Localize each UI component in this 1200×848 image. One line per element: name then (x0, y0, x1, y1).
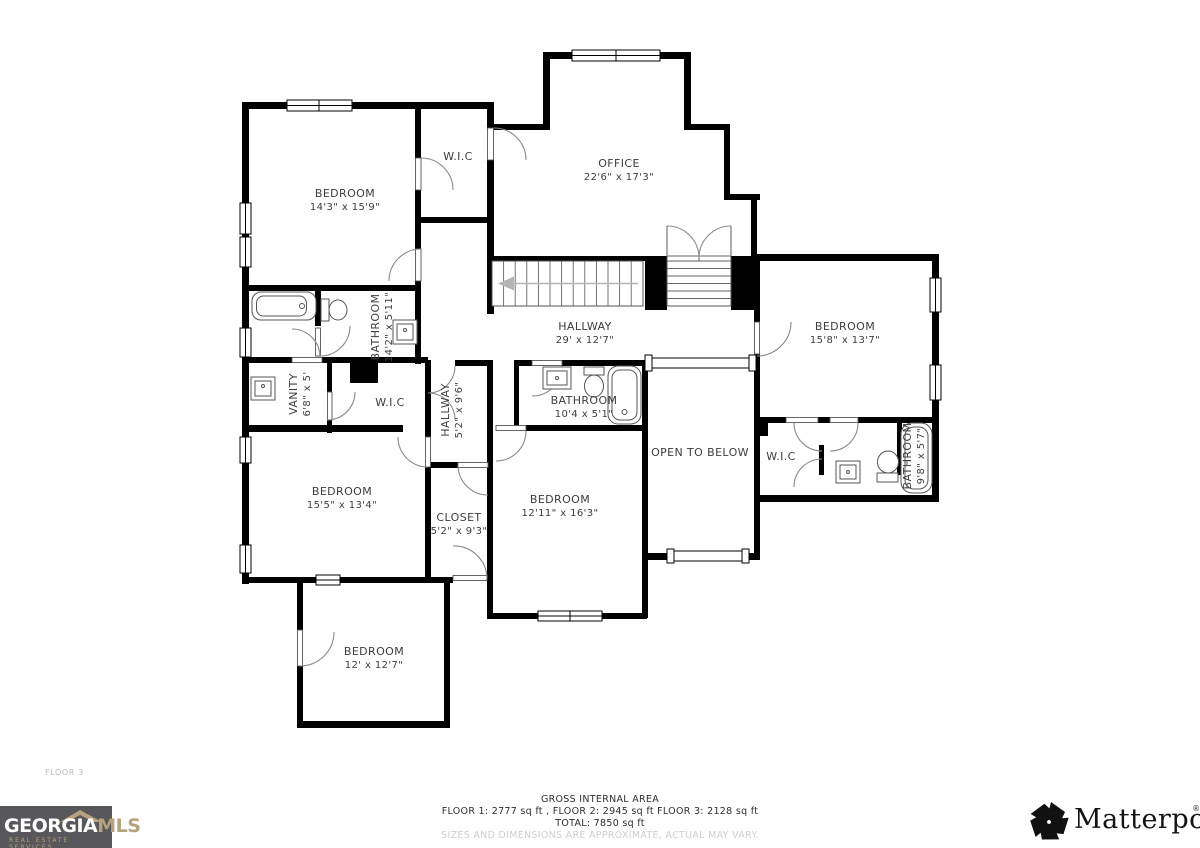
toilet-mid-bathroom (584, 367, 604, 397)
railings (645, 355, 756, 563)
sink-mid-bathroom (543, 367, 571, 389)
svg-text:12' x 12'7": 12' x 12'7" (345, 660, 404, 671)
room-label-bedroom-mid: BEDROOM 12'11" x 16'3" (521, 493, 598, 519)
sink-vanity (251, 377, 275, 400)
georgia-mls-logo: GEORGIAMLS REAL ESTATE SERVICES (0, 806, 112, 848)
floor-areas-line: FLOOR 1: 2777 sq ft , FLOOR 2: 2945 sq f… (0, 806, 1200, 818)
sink-left (393, 320, 417, 344)
svg-text:W.I.C: W.I.C (443, 150, 473, 163)
svg-text:12'11" x 16'3": 12'11" x 16'3" (521, 508, 598, 519)
svg-text:14'3" x 15'9": 14'3" x 15'9" (310, 202, 380, 213)
svg-text:W.I.C: W.I.C (375, 396, 405, 409)
svg-text:BEDROOM: BEDROOM (312, 485, 372, 498)
room-label-hallway-main: HALLWAY 29' x 12'7" (556, 320, 615, 346)
toilet-left (321, 299, 347, 321)
room-label-bedroom-left: BEDROOM 15'5" x 13'4" (307, 485, 377, 511)
svg-text:29' x 12'7": 29' x 12'7" (556, 335, 615, 346)
room-label-bedroom-right: BEDROOM 15'8" x 13'7" (810, 320, 880, 346)
staircase (492, 261, 731, 306)
svg-text:BEDROOM: BEDROOM (530, 493, 590, 506)
footer-area-summary: GROSS INTERNAL AREA FLOOR 1: 2777 sq ft … (0, 794, 1200, 843)
svg-text:22'6" x 17'3": 22'6" x 17'3" (584, 172, 654, 183)
svg-text:HALLWAY: HALLWAY (439, 383, 452, 437)
room-label-bedroom-topleft: BEDROOM 14'3" x 15'9" (310, 187, 380, 213)
room-label-hallway-small: HALLWAY 5'2" x 9'6" (439, 382, 465, 439)
georgia-mls-wordmark: GEORGIAMLS (4, 815, 140, 837)
svg-text:CLOSET: CLOSET (436, 511, 481, 524)
room-label-wic-left: W.I.C (375, 396, 405, 409)
svg-text:BEDROOM: BEDROOM (344, 645, 404, 658)
room-label-vanity: VANITY 6'8" x 5' (287, 371, 313, 416)
svg-text:VANITY: VANITY (287, 373, 300, 415)
room-label-office: OFFICE 22'6" x 17'3" (584, 157, 654, 183)
room-label-bathroom-left: BATHROOM 14'2" x 5'11" (369, 292, 395, 362)
georgia-mls-tagline: REAL ESTATE SERVICES (9, 837, 112, 848)
total-area-line: TOTAL: 7850 sq ft (0, 818, 1200, 830)
svg-text:5'2" x 9'6": 5'2" x 9'6" (454, 382, 465, 439)
svg-text:OFFICE: OFFICE (598, 157, 640, 170)
svg-text:W.I.C: W.I.C (766, 450, 796, 463)
room-label-bathroom-mid: BATHROOM 10'4 x 5'1" (551, 394, 618, 420)
floor-label: FLOOR 3 (45, 768, 84, 777)
mls-text: MLS (97, 815, 140, 837)
room-label-wic-top: W.I.C (443, 150, 473, 163)
floorplan-drawing: BEDROOM 14'3" x 15'9" W.I.C OFFICE 22'6"… (0, 0, 1200, 790)
room-labels: BEDROOM 14'3" x 15'9" W.I.C OFFICE 22'6"… (287, 150, 927, 671)
matterport-wordmark: Matterport (1074, 804, 1200, 835)
svg-text:BATHROOM: BATHROOM (369, 294, 382, 361)
room-label-closet: CLOSET 5'2" x 9'3" (431, 511, 488, 537)
floorplan-page: BEDROOM 14'3" x 15'9" W.I.C OFFICE 22'6"… (0, 0, 1200, 848)
room-label-open-to-below: OPEN TO BELOW (651, 446, 749, 459)
room-label-wic-right: W.I.C (766, 450, 796, 463)
svg-text:BATHROOM: BATHROOM (901, 423, 914, 490)
svg-text:OPEN TO BELOW: OPEN TO BELOW (651, 446, 749, 459)
svg-text:6'8" x 5': 6'8" x 5' (302, 371, 313, 416)
gross-internal-area-heading: GROSS INTERNAL AREA (0, 794, 1200, 806)
svg-text:10'4 x 5'1": 10'4 x 5'1" (555, 409, 614, 420)
svg-text:BATHROOM: BATHROOM (551, 394, 618, 407)
svg-text:BEDROOM: BEDROOM (315, 187, 375, 200)
svg-text:5'2" x 9'3": 5'2" x 9'3" (431, 526, 488, 537)
matterport-registered-mark: ® (1192, 804, 1200, 813)
svg-text:HALLWAY: HALLWAY (558, 320, 612, 333)
room-label-bedroom-bottom: BEDROOM 12' x 12'7" (344, 645, 404, 671)
disclaimer-line: SIZES AND DIMENSIONS ARE APPROXIMATE, AC… (0, 830, 1200, 842)
georgia-text: GEORGIA (4, 815, 97, 837)
toilet-right-bathroom (877, 451, 899, 482)
svg-text:BEDROOM: BEDROOM (815, 320, 875, 333)
svg-text:15'8" x 13'7": 15'8" x 13'7" (810, 335, 880, 346)
svg-text:14'2" x 5'11": 14'2" x 5'11" (384, 292, 395, 362)
svg-text:15'5" x 13'4": 15'5" x 13'4" (307, 500, 377, 511)
matterport-pinwheel-icon (1026, 798, 1072, 844)
svg-text:9'8" x 5'7": 9'8" x 5'7" (916, 428, 927, 485)
sink-right-bathroom (836, 461, 860, 483)
matterport-logo: Matterport ® (1026, 798, 1200, 844)
bathtub-left (252, 292, 316, 320)
